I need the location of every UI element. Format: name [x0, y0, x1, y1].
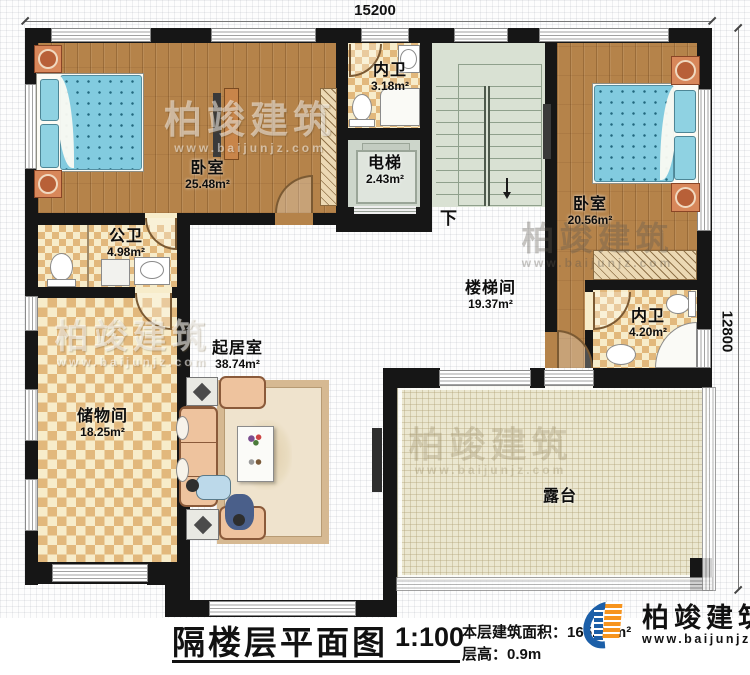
terrace-railing-bottom	[397, 578, 712, 590]
room-label-bedroom2: 卧室 20.56m²	[545, 196, 635, 228]
public-bath-sink	[140, 261, 164, 279]
wall-bath2-top	[593, 280, 697, 290]
room-name: 内卫	[608, 308, 688, 326]
living-sofa-top-seat	[219, 376, 266, 409]
wall-bedroom1-right	[336, 43, 348, 232]
living-side-table-1	[186, 377, 218, 406]
table-lamp-icon	[193, 515, 211, 533]
window-top-1	[52, 29, 150, 41]
bedroom2-pillow-1	[674, 90, 696, 133]
brand-name: 柏竣建筑	[642, 604, 750, 632]
wall-step-corner	[147, 562, 167, 585]
room-label-terrace: 露台	[520, 488, 600, 506]
public-bath-toilet-tank	[47, 279, 76, 287]
room-area: 20.56m²	[545, 214, 635, 228]
room-name: 卧室	[160, 160, 255, 178]
person-on-floor-head	[233, 514, 245, 526]
living-sofa-cushion-2	[176, 458, 189, 482]
person-on-sofa	[196, 475, 231, 500]
elevator-sliding-door	[354, 206, 416, 214]
dimension-top: 15200	[340, 2, 410, 19]
room-area: 4.20m²	[608, 326, 688, 340]
wall-south-2	[593, 368, 712, 388]
bedroom1-tv	[213, 93, 221, 157]
window-living-bottom	[210, 602, 355, 615]
wall-stairs-right	[545, 43, 557, 332]
coffee-table-cups	[248, 459, 262, 465]
stair-inner-outline	[458, 64, 542, 206]
bath2-door-gap	[585, 292, 593, 330]
lamp-icon	[38, 174, 58, 194]
bath1-toilet	[352, 94, 372, 121]
bedroom2-pillow-2	[674, 136, 696, 180]
room-label-stair-hall: 楼梯间 19.37m²	[443, 280, 538, 312]
bedroom2-nightstand-2	[671, 183, 700, 212]
table-lamp-icon	[193, 382, 211, 400]
bath1-toilet-tank	[349, 119, 375, 127]
plan-title: 隔楼层平面图	[172, 616, 388, 664]
window-right-2	[698, 330, 710, 367]
room-label-bedroom1: 卧室 25.48m²	[160, 160, 255, 192]
terrace-slider-door	[440, 371, 530, 385]
room-area: 2.43m²	[345, 173, 425, 187]
room-area: 38.74m²	[195, 358, 280, 372]
bedroom2-nightstand-1	[671, 56, 700, 85]
room-label-living: 起居室 38.74m²	[195, 340, 280, 372]
window-left-3	[26, 390, 37, 440]
room-name: 起居室	[195, 340, 280, 358]
room-label-storage: 储物间 18.25m²	[60, 408, 145, 440]
dimension-top-line	[25, 21, 712, 22]
room-area: 25.48m²	[160, 178, 255, 192]
room-label-public-bath: 公卫 4.98m²	[86, 228, 166, 260]
bedroom1-door-gap	[275, 213, 313, 225]
wall-living-terrace	[383, 368, 397, 617]
brand-logo-icon	[584, 594, 636, 656]
floor-plan-sheet: 下 卧室 25.48m² 内卫 3.18m² 电梯 2.43m²	[0, 0, 750, 675]
living-sofa-cushion-1	[176, 416, 189, 440]
dimension-right-line	[738, 28, 739, 590]
title-underline	[172, 660, 460, 663]
room-name: 内卫	[350, 62, 430, 80]
wall-bath1-elevator	[348, 128, 420, 140]
window-south	[545, 371, 593, 385]
stair-down-arrow-icon	[506, 178, 508, 192]
logo-building-orange-shape	[602, 602, 622, 638]
room-name: 储物间	[60, 408, 145, 426]
room-label-bath1: 内卫 3.18m²	[350, 62, 430, 94]
title-block: 隔楼层平面图 1:100 本层建筑面积：165.50m² 层高：0.9m 柏竣建…	[0, 618, 750, 675]
brand-logo: 柏竣建筑 www.baijunjz.com	[584, 594, 750, 656]
bedroom1-wardrobe	[320, 88, 337, 206]
room-name: 露台	[520, 488, 600, 506]
bedroom2-tv	[543, 104, 551, 159]
stair-down-arrowhead-icon	[503, 192, 511, 199]
room-area: 3.18m²	[350, 80, 430, 94]
brand-text: 柏竣建筑 www.baijunjz.com	[642, 604, 750, 646]
lamp-icon	[38, 49, 58, 69]
window-left-4	[26, 480, 37, 530]
floor-height-label: 层高：	[462, 646, 507, 663]
stair-down-label: 下	[440, 204, 457, 229]
window-top-3	[362, 29, 408, 41]
bedroom1-nightstand-2	[34, 170, 62, 198]
window-top-5	[540, 29, 668, 41]
room-area: 19.37m²	[443, 298, 538, 312]
wall-south-pier	[530, 368, 545, 388]
bedroom1-nightstand-1	[34, 45, 62, 73]
person-on-sofa-head	[186, 479, 199, 492]
room-label-elevator: 电梯 2.43m²	[345, 155, 425, 187]
public-bath-washer	[101, 259, 130, 286]
terrace-floor	[397, 385, 707, 580]
floor-height-value: 0.9m	[507, 646, 541, 663]
room-area: 4.98m²	[86, 246, 166, 260]
dimension-right: 12800	[719, 305, 736, 359]
room-area: 18.25m²	[60, 426, 145, 440]
window-top-4	[455, 29, 507, 41]
room-name: 电梯	[345, 155, 425, 173]
floor-area-label: 本层建筑面积：	[462, 624, 567, 641]
elevator-top-bar	[362, 143, 410, 151]
room-name: 公卫	[86, 228, 166, 246]
window-top-2	[212, 29, 315, 41]
terrace-railing-right	[703, 388, 715, 590]
lamp-icon	[675, 60, 696, 81]
stair-center-rail	[484, 86, 490, 206]
public-bath-toilet	[50, 253, 73, 281]
bedroom1-tv-console	[224, 88, 239, 160]
bedroom1-pillow-1	[40, 79, 59, 121]
room-name: 卧室	[545, 196, 635, 214]
room-name: 楼梯间	[443, 280, 538, 298]
living-tv	[372, 428, 382, 492]
bedroom1-pillow-2	[40, 124, 59, 168]
coffee-table-flowers	[246, 433, 264, 447]
corridor-door-gap	[545, 332, 557, 368]
window-storage-bottom	[53, 565, 147, 581]
room-label-bath2: 内卫 4.20m²	[608, 308, 688, 340]
living-side-table-2	[186, 509, 219, 540]
lamp-icon	[675, 187, 696, 208]
bedroom2-wardrobe	[593, 250, 697, 280]
bath2-sink	[606, 344, 636, 365]
bath2-toilet-tank	[688, 291, 696, 317]
brand-website: www.baijunjz.com	[642, 632, 750, 646]
window-left-2	[26, 297, 37, 330]
plan-scale: 1:100	[395, 622, 464, 653]
